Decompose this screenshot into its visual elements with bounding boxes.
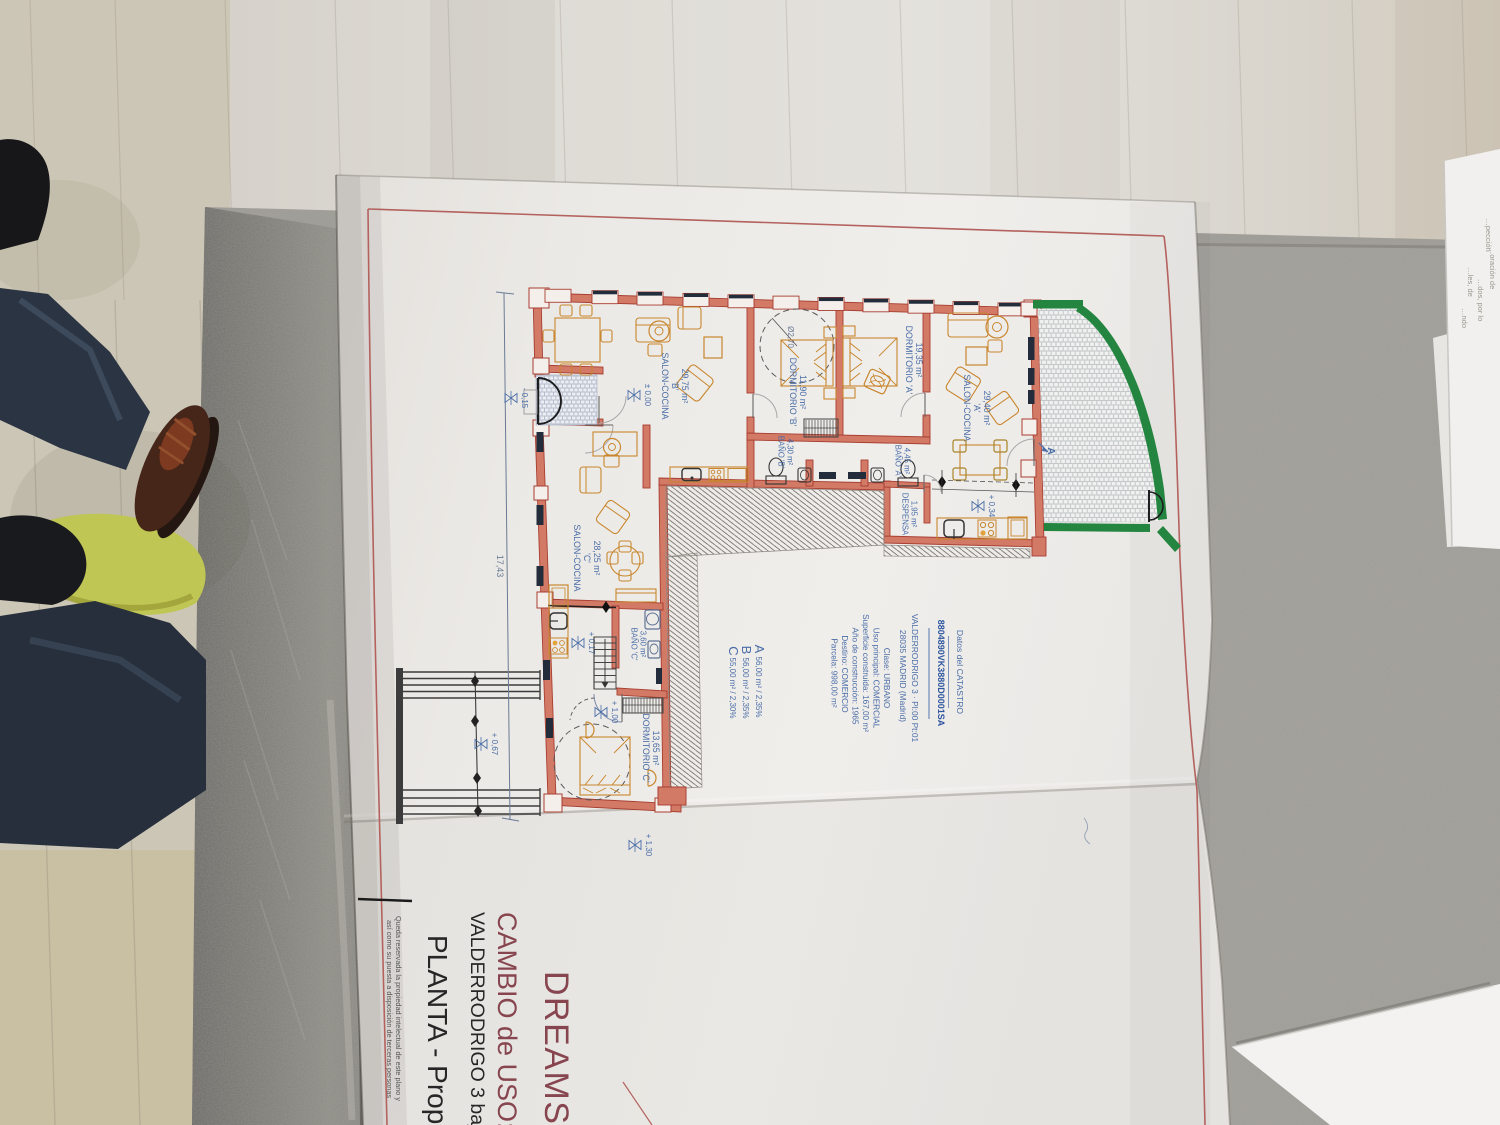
svg-text:Datos del CATASTRO: Datos del CATASTRO (955, 630, 965, 715)
svg-text:56,00 m² / 2,35%: 56,00 m² / 2,35% (741, 658, 750, 719)
svg-text:SALON-COCINA: SALON-COCINA (572, 525, 582, 592)
svg-text:Año de construcción: 1965: Año de construcción: 1965 (851, 628, 860, 725)
svg-text:VALDERRODRIGO 3 bajo: VALDERRODRIGO 3 bajo (466, 912, 488, 1125)
svg-text:VALDERRODRIGO 3 · Pl:00 Pt:01: VALDERRODRIGO 3 · Pl:00 Pt:01 (910, 614, 920, 743)
svg-text:DORMITORIO 'A': DORMITORIO 'A' (904, 326, 914, 395)
svg-text:CAMBIO de USO: Tienda a: CAMBIO de USO: Tienda a (492, 912, 522, 1125)
svg-text:así como su puesta a disposici: así como su puesta a disposición de terc… (385, 920, 394, 1098)
svg-text:PLANTA - Propuesta: PLANTA - Propuesta (422, 935, 453, 1125)
svg-text:19,35 m²: 19,35 m² (914, 343, 924, 378)
svg-text:11,90 m²: 11,90 m² (798, 375, 808, 409)
svg-text:BAÑO 'C': BAÑO 'C' (630, 628, 639, 661)
svg-text:28035 MADRID (Madrid): 28035 MADRID (Madrid) (898, 630, 908, 722)
svg-text:'C': 'C' (582, 553, 592, 563)
svg-text:- 0,15: - 0,15 (520, 388, 529, 409)
svg-text:DESPENSA: DESPENSA (901, 493, 910, 536)
svg-text:C: C (726, 646, 741, 655)
svg-text:+ 0,67: + 0,67 (490, 733, 499, 756)
svg-text:8804890VK3880D0001SA: 8804890VK3880D0001SA (936, 620, 946, 727)
svg-text:4,45 m²: 4,45 m² (903, 448, 912, 475)
svg-text:'A': 'A' (972, 403, 982, 413)
svg-text:'B': 'B' (670, 381, 680, 391)
svg-text:+ 1,30: + 1,30 (644, 834, 653, 857)
svg-text:…dos, por lo: …dos, por lo (1476, 279, 1485, 322)
svg-text:29,75 m²: 29,75 m² (680, 369, 690, 404)
svg-text:Clase: URBANO: Clase: URBANO (882, 648, 891, 709)
svg-text:DREAMS: DREAMS (537, 971, 575, 1125)
svg-text:55,00 m² / 2,30%: 55,00 m² / 2,30% (728, 658, 737, 719)
svg-text:Parcela: 998,00 m²: Parcela: 998,00 m² (830, 638, 839, 707)
svg-text:…ndo: …ndo (1460, 308, 1469, 328)
svg-text:SALON-COCINA: SALON-COCINA (660, 353, 670, 420)
svg-text:Queda reservada la propiedad i: Queda reservada la propiedad intelectual… (394, 916, 403, 1101)
svg-text:…oración de: …oración de (1488, 247, 1497, 290)
svg-text:56,00 m² / 2,35%: 56,00 m² / 2,35% (754, 657, 763, 718)
svg-text:BAÑO 'B': BAÑO 'B' (777, 436, 786, 469)
svg-text:1,95 m²: 1,95 m² (910, 501, 919, 528)
svg-text:BAÑO 'A': BAÑO 'A' (894, 445, 903, 478)
svg-text:SALON-COCINA: SALON-COCINA (962, 375, 972, 442)
svg-text:29,40 m²: 29,40 m² (982, 391, 992, 426)
svg-text:17,43: 17,43 (495, 555, 505, 578)
svg-text:+ 0,34: + 0,34 (987, 495, 996, 518)
svg-text:± 0,00: ± 0,00 (643, 384, 652, 407)
svg-text:3,60 m²: 3,60 m² (639, 631, 648, 658)
svg-text:+ 1,00: + 1,00 (610, 701, 619, 724)
svg-text:Uso principal: COMERCIAL: Uso principal: COMERCIAL (872, 628, 881, 729)
svg-text:Ø2,70: Ø2,70 (786, 326, 795, 348)
svg-text:DORMITORIO 'B': DORMITORIO 'B' (788, 358, 798, 427)
svg-text:Destino: COMERCIO: Destino: COMERCIO (840, 635, 849, 712)
svg-text:…les, de: …les, de (1466, 267, 1475, 297)
svg-text:13,65 m²: 13,65 m² (651, 731, 661, 766)
svg-text:DORMITORIO 'C': DORMITORIO 'C' (641, 713, 651, 782)
svg-text:4,30 m²: 4,30 m² (786, 439, 795, 466)
svg-text:28,25 m²: 28,25 m² (592, 541, 602, 576)
svg-text:…pección: …pección (1484, 218, 1493, 251)
svg-text:Superficie construida: 167,00: Superficie construida: 167,00 m² (861, 614, 870, 732)
